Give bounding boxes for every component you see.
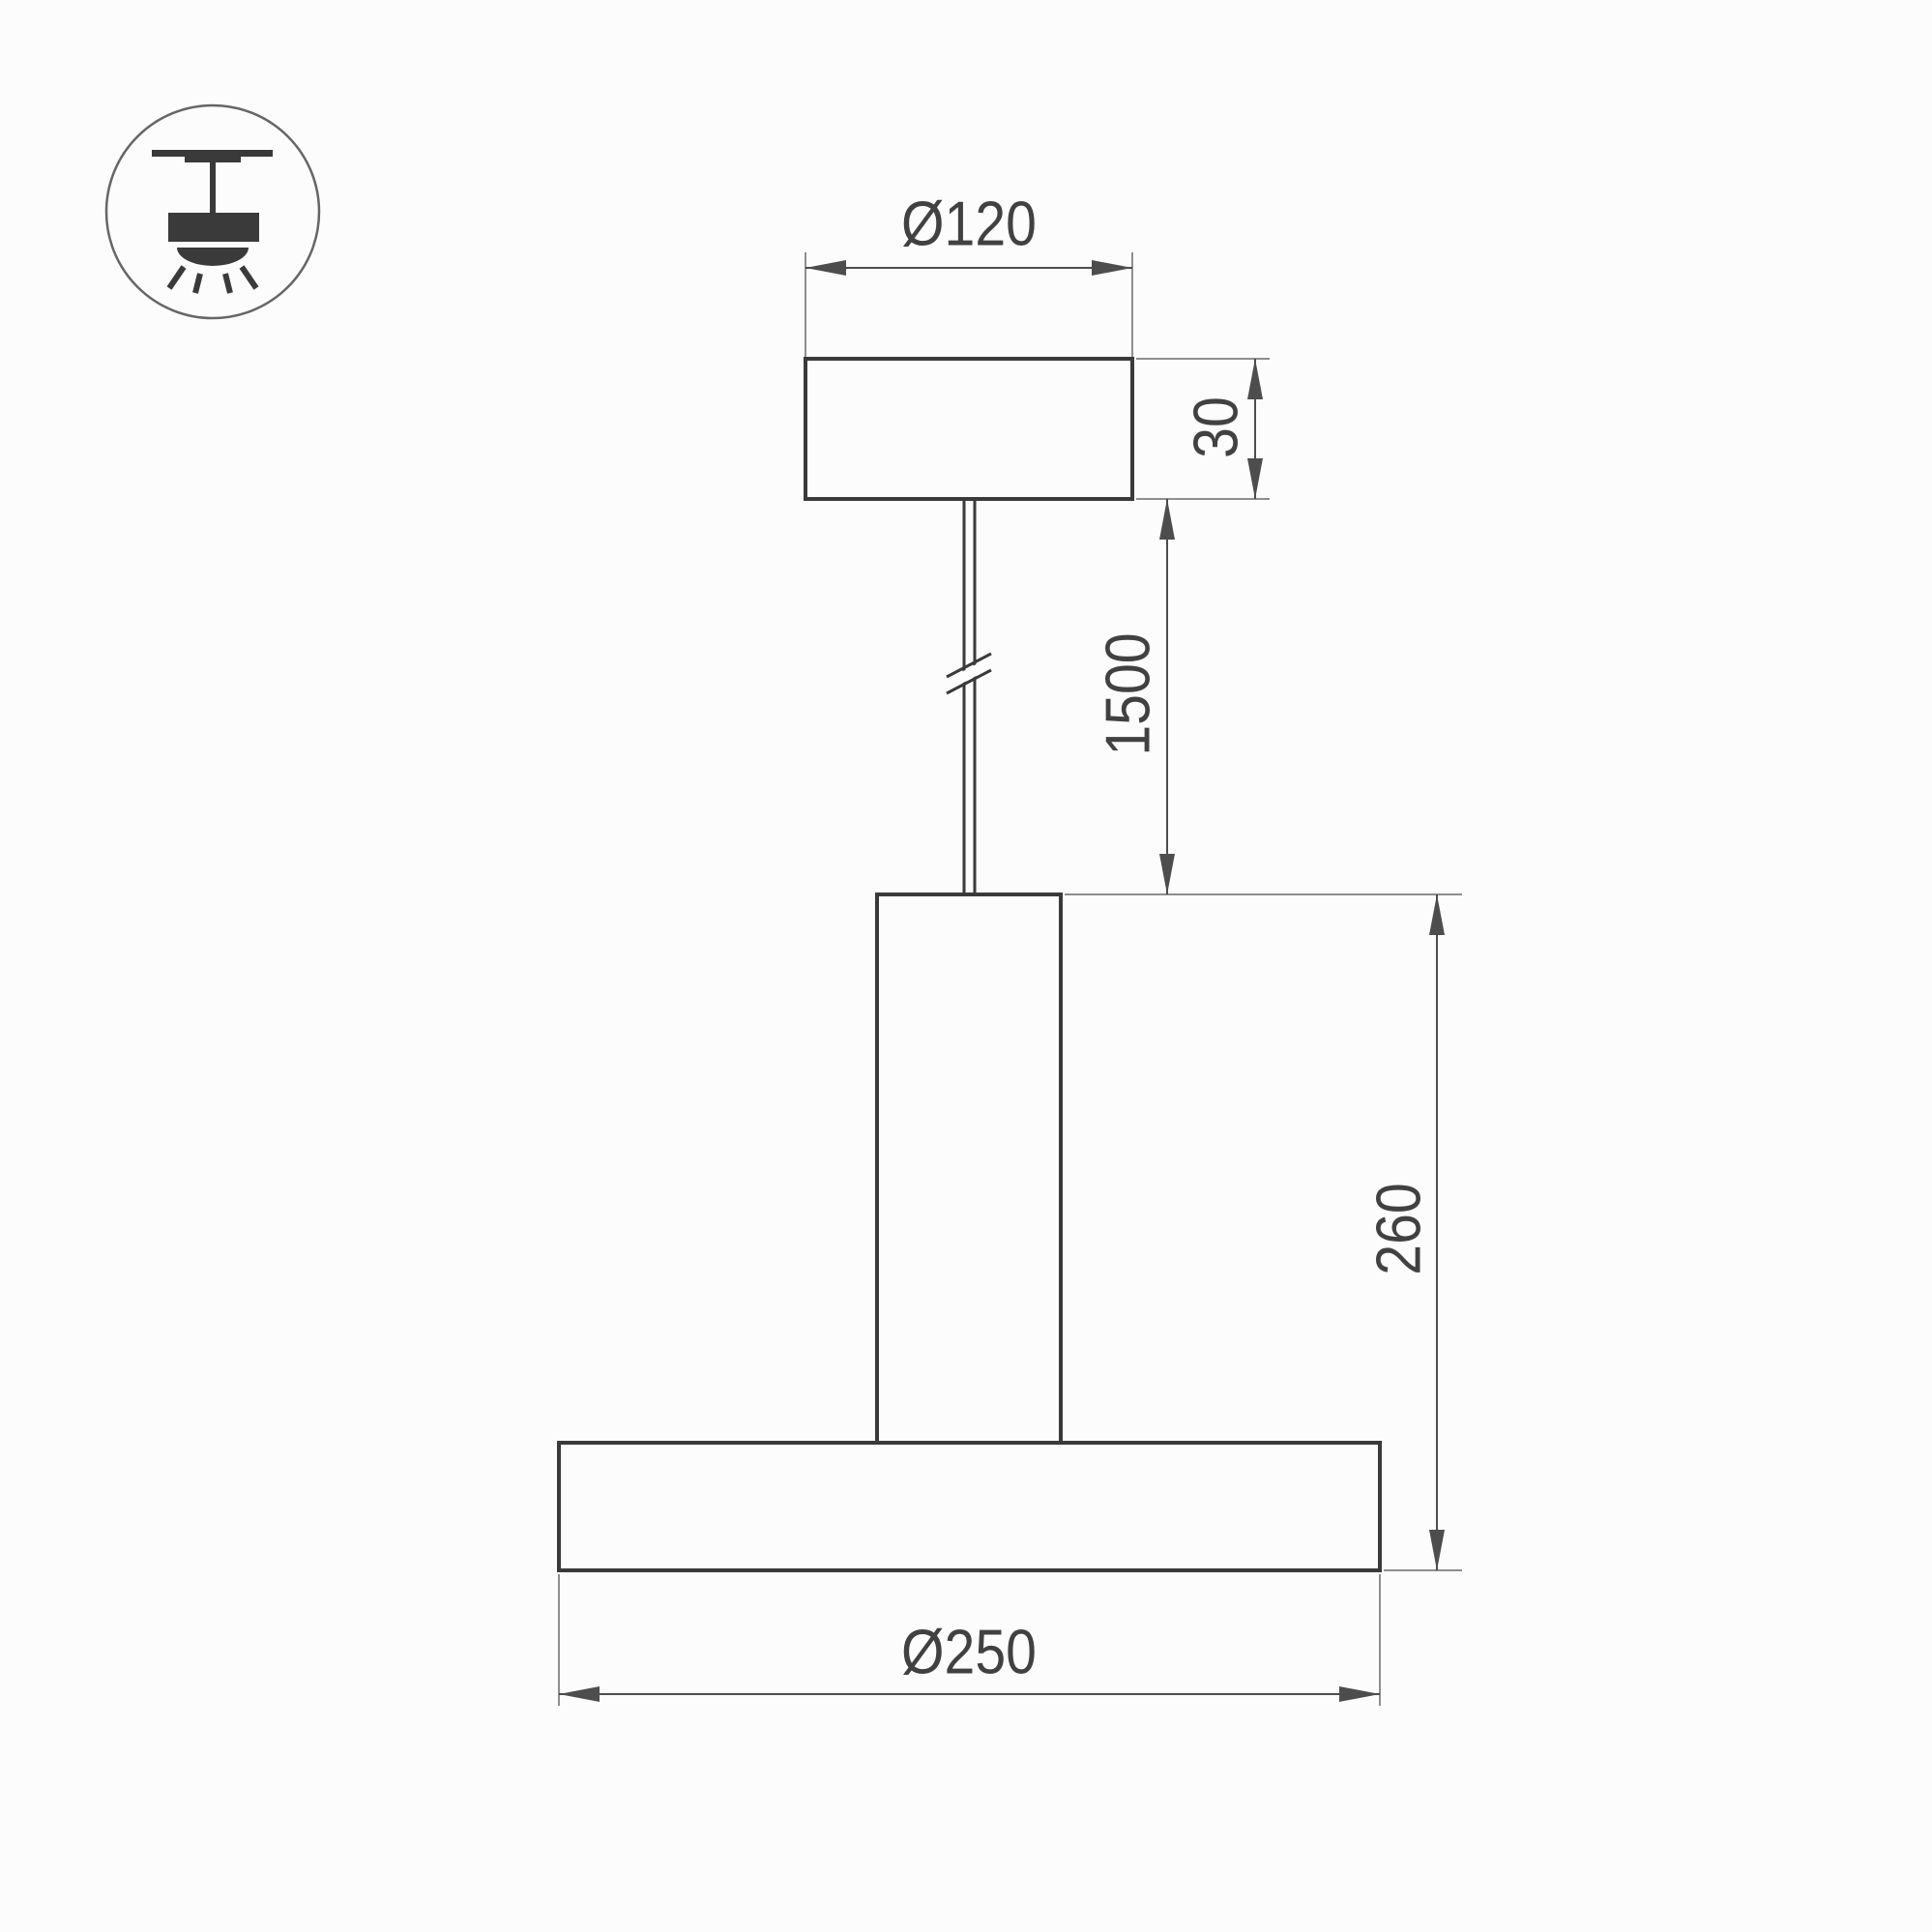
extension-lines <box>559 252 1462 1706</box>
icon-suspension-rod <box>210 157 216 217</box>
icon-lamp-body <box>168 213 259 242</box>
lamp-cylinder <box>877 894 1061 1443</box>
dim-label-shade-diameter: Ø250 <box>901 1621 1037 1683</box>
dim-label-body-height: 260 <box>1367 1183 1430 1274</box>
icon-light-dome <box>177 248 249 266</box>
dim-label-canopy-diameter: Ø120 <box>901 192 1037 255</box>
technical-drawing-canvas: Ø120 30 1500 260 Ø250 <box>0 0 1932 1932</box>
icon-ceiling-bar <box>152 150 273 157</box>
canopy-rectangle <box>805 359 1132 499</box>
dim-label-suspension-length: 1500 <box>1097 632 1159 755</box>
ceiling-pendant-lamp-icon <box>106 105 319 318</box>
dim-label-canopy-height: 30 <box>1185 396 1247 458</box>
lamp-outline <box>559 359 1380 1570</box>
lamp-shade-disc <box>559 1443 1380 1570</box>
icon-light-rays <box>169 267 256 293</box>
dimension-shade-diameter <box>559 1686 1380 1702</box>
dimension-canopy-diameter <box>805 260 1132 276</box>
